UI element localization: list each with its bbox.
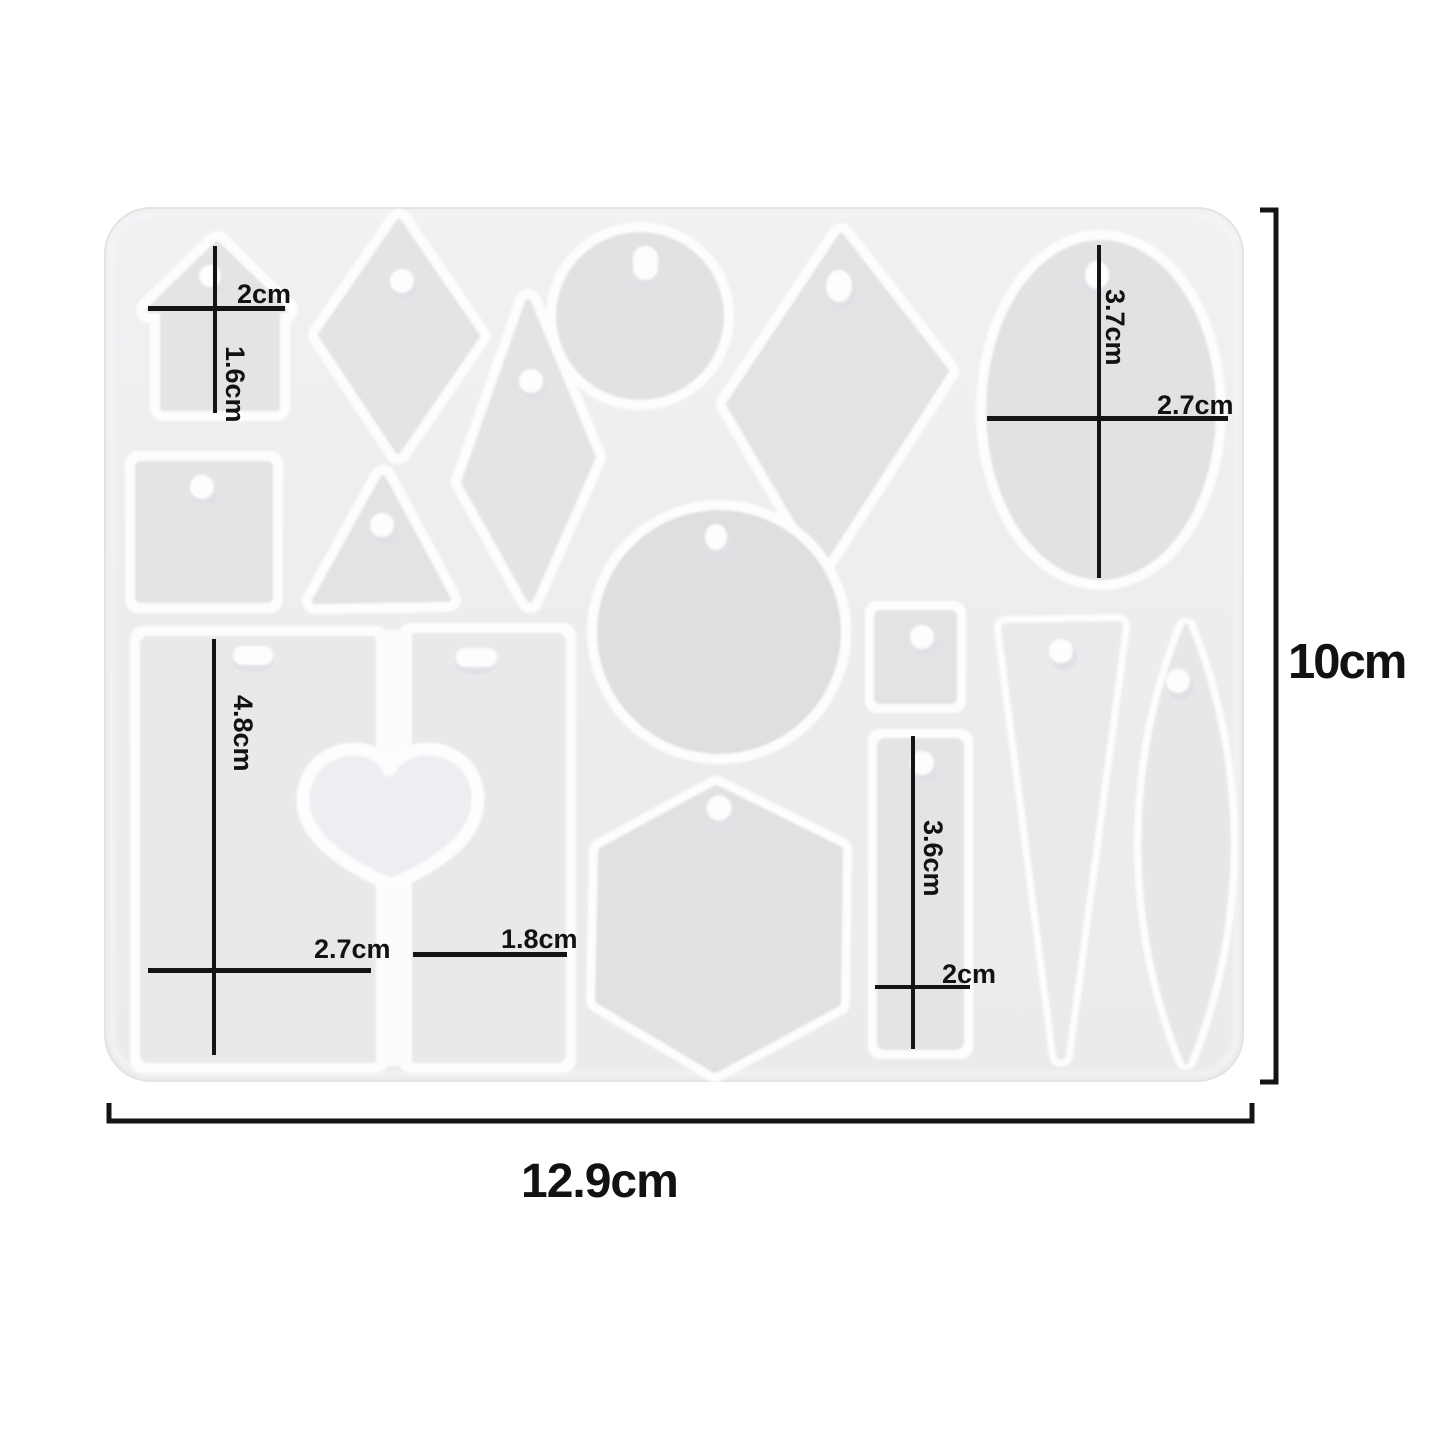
svg-text:2cm: 2cm [942, 959, 996, 989]
svg-text:2.7cm: 2.7cm [314, 934, 391, 964]
svg-text:3.7cm: 3.7cm [1100, 289, 1130, 366]
svg-text:1.6cm: 1.6cm [220, 346, 250, 423]
svg-text:1.8cm: 1.8cm [501, 924, 578, 954]
svg-text:3.6cm: 3.6cm [918, 820, 948, 897]
svg-text:4.8cm: 4.8cm [228, 695, 258, 772]
svg-text:10cm: 10cm [1288, 635, 1405, 689]
svg-text:2.7cm: 2.7cm [1157, 390, 1234, 420]
svg-text:2cm: 2cm [237, 279, 291, 309]
svg-text:12.9cm: 12.9cm [521, 1155, 678, 1208]
